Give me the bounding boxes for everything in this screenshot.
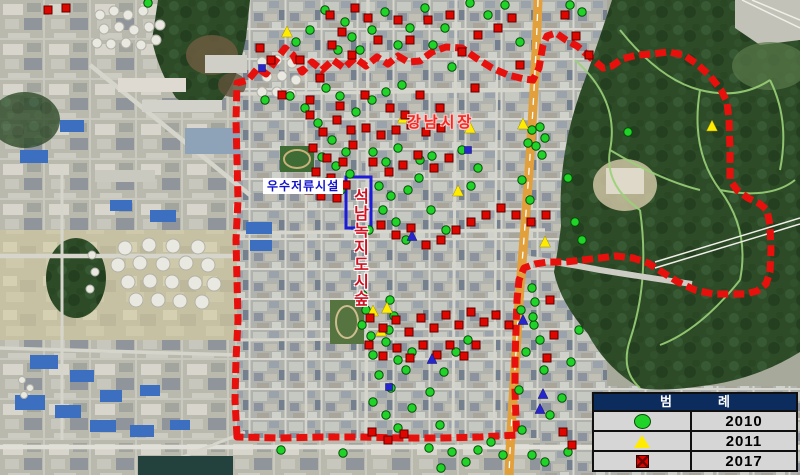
legend-row-2017: 2017	[594, 450, 796, 470]
legend-year: 2017	[690, 452, 796, 470]
legend-symbol-cell	[594, 452, 690, 470]
legend: 범 례 2010 2011 2017	[592, 392, 798, 472]
legend-title-right: 례	[718, 394, 730, 410]
legend-symbol-cell	[594, 412, 690, 430]
satellite-map: 우수저류시설 석남녹지도시숲 강남시장 범 례 2010 2011 2017	[0, 0, 800, 475]
legend-symbol-cell	[594, 432, 690, 450]
market-label: 강남시장	[407, 111, 474, 132]
red-square-icon	[636, 455, 649, 468]
legend-title: 범 례	[594, 394, 796, 410]
green-circle-icon	[634, 414, 651, 429]
legend-year: 2011	[690, 432, 796, 450]
legend-year: 2010	[690, 412, 796, 430]
yellow-triangle-icon	[634, 435, 650, 448]
stormwater-facility-label: 우수저류시설	[263, 178, 343, 194]
urban-forest-label: 석남녹지도시숲	[352, 189, 371, 308]
legend-row-2010: 2010	[594, 410, 796, 430]
legend-title-left: 범	[660, 394, 672, 410]
legend-row-2011: 2011	[594, 430, 796, 450]
